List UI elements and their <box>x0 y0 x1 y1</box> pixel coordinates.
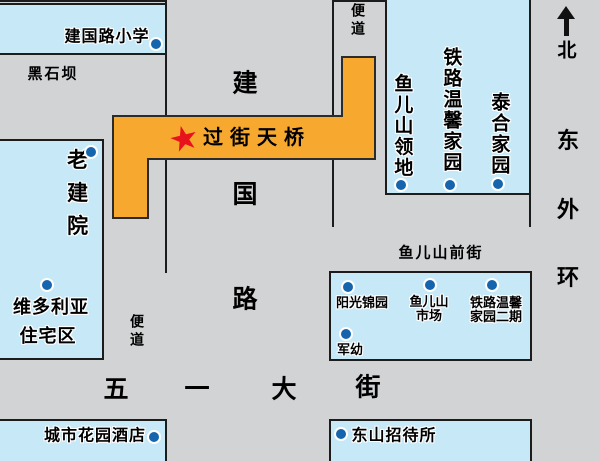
road-label-wuyi-3: 大 <box>271 378 296 403</box>
road-label-sidewalk-right: 便道 <box>351 3 365 39</box>
label-city-garden-hotel: 城市花园酒店 <box>44 426 146 445</box>
marker-taihe-jiayuan <box>493 179 503 189</box>
marker-city-garden-hotel <box>149 432 159 442</box>
label-tielu-wenxin-jiayuan: 铁路温馨家园 <box>439 47 462 173</box>
road-label-wuyi-1: 五 <box>103 378 128 403</box>
road-label-heishiba: 黑石坝 <box>27 67 78 82</box>
marker-lao-jian-yuan <box>86 147 96 157</box>
marker-tielu-phase2 <box>487 280 497 290</box>
road-label-jianguo-1: 建 <box>232 72 257 97</box>
label-yuershan-market-line2: 市场 <box>416 308 442 324</box>
label-yangguang-jinyuan: 阳光锦园 <box>336 295 388 311</box>
north-arrow-head-icon <box>557 6 575 19</box>
marker-tielu-wenxin-jiayuan <box>445 180 455 190</box>
road-label-wuyi-2: 一 <box>184 378 209 403</box>
schematic-map: ★ 过街天桥 黑石坝 建 国 路 五 一 大 街 鱼儿山前街 便道 便道 北 东… <box>0 0 600 461</box>
road-label-ring-3: 环 <box>557 267 579 289</box>
marker-victoria <box>42 280 52 290</box>
north-arrow-icon <box>564 16 569 36</box>
marker-yuershan-market <box>425 280 435 290</box>
marker-jun-you <box>341 329 351 339</box>
marker-yuershan-lingdi <box>396 180 406 190</box>
road-label-ring-2: 外 <box>557 199 579 221</box>
label-dongshan-guesthouse: 东山招待所 <box>351 426 436 445</box>
label-tielu-phase2-line2: 家园二期 <box>470 309 522 325</box>
compass-north-label: 北 <box>557 42 576 61</box>
label-jianguolu-primary-school: 建国路小学 <box>64 27 149 46</box>
marker-yangguang-jinyuan <box>343 282 353 292</box>
label-jun-you: 军幼 <box>337 342 363 358</box>
bridge-label: 过街天桥 <box>203 128 311 148</box>
marker-dongshan-guesthouse <box>336 429 346 439</box>
road-label-jianguo-3: 路 <box>232 288 257 313</box>
label-victoria-line2: 住宅区 <box>20 326 77 348</box>
label-lao-jian-yuan: 老建院 <box>63 149 88 248</box>
road-label-sidewalk-left: 便道 <box>130 314 144 350</box>
pedestrian-bridge-shape <box>0 0 600 461</box>
marker-jianguolu-primary-school <box>151 39 161 49</box>
road-label-jianguo-2: 国 <box>232 183 257 208</box>
label-taihe-jiayuan: 泰合家园 <box>487 92 510 176</box>
label-victoria-line1: 维多利亚 <box>13 297 89 319</box>
road-label-yuershan-front-street: 鱼儿山前街 <box>398 246 483 261</box>
road-label-wuyi-4: 街 <box>355 376 380 401</box>
label-yuershan-lingdi: 鱼儿山领地 <box>390 74 413 179</box>
road-label-ring-1: 东 <box>557 130 579 152</box>
